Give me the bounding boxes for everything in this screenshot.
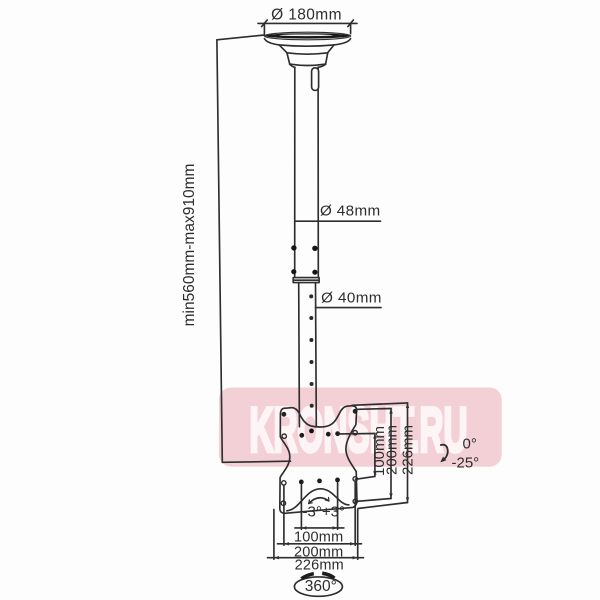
svg-text:0°: 0° (463, 435, 477, 452)
svg-text:min560mm-max910mm: min560mm-max910mm (181, 164, 198, 327)
svg-text:Ø 40mm: Ø 40mm (321, 290, 382, 307)
svg-text:360°: 360° (305, 578, 337, 595)
svg-text:Ø 180mm: Ø 180mm (271, 7, 342, 24)
svg-text:226mm: 226mm (400, 425, 417, 475)
svg-text:226mm: 226mm (295, 558, 344, 574)
svg-text:Ø 48mm: Ø 48mm (320, 203, 381, 220)
svg-text:-3°+3°: -3°+3° (303, 504, 345, 521)
svg-text:-25°: -25° (452, 454, 480, 471)
svg-text:200mm: 200mm (383, 425, 400, 475)
